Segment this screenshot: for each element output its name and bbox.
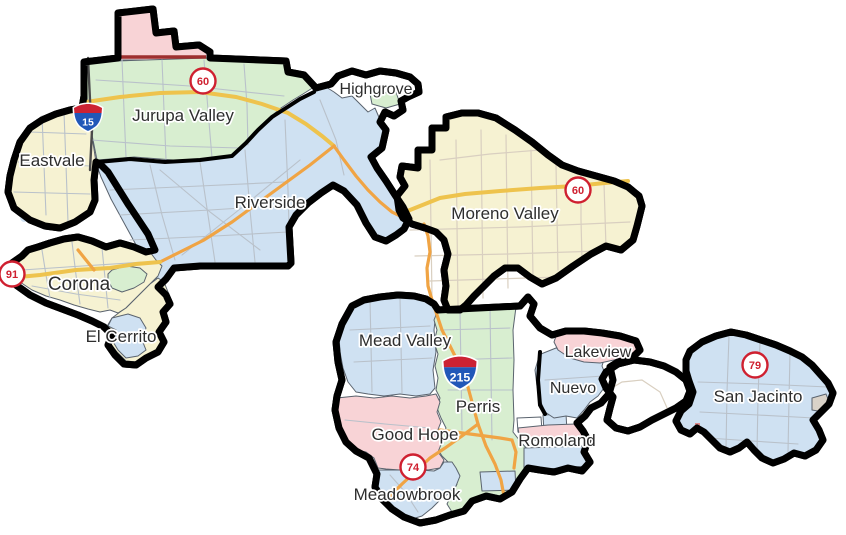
shield-sr60-west-label: 60: [197, 76, 209, 88]
shield-sr60-west: 60: [191, 69, 216, 94]
shield-sr91: 91: [0, 262, 25, 287]
label-eastvale: Eastvale: [19, 151, 84, 170]
shield-sr74: 74: [401, 455, 426, 480]
label-nuevo: Nuevo: [550, 380, 596, 397]
shield-i15-label: 15: [82, 117, 94, 129]
label-lakeview: Lakeview: [565, 344, 632, 361]
shield-sr74-label: 74: [407, 462, 420, 474]
label-meadowbrook: Meadowbrook: [354, 485, 461, 504]
shield-sr79-label: 79: [749, 360, 761, 372]
label-good-hope: Good Hope: [372, 425, 459, 444]
map-canvas[interactable]: 15 215 60 60 91 74 79 Eastvale Jurupa Va…: [0, 0, 846, 535]
label-mead-valley: Mead Valley: [359, 331, 452, 350]
label-perris: Perris: [456, 397, 500, 416]
label-san-jacinto: San Jacinto: [714, 387, 803, 406]
shield-sr60-east: 60: [566, 178, 591, 203]
shield-i215-label: 215: [450, 370, 471, 384]
map-stage: 15 215 60 60 91 74 79 Eastvale Jurupa Va…: [0, 0, 846, 535]
label-highgrove: Highgrove: [340, 81, 413, 98]
shield-sr91-label: 91: [6, 269, 18, 281]
label-romoland: Romoland: [518, 431, 596, 450]
label-el-cerrito: El Cerrito: [86, 327, 157, 346]
label-corona: Corona: [48, 274, 111, 295]
label-jurupa-valley: Jurupa Valley: [132, 106, 234, 125]
shield-sr79: 79: [743, 353, 768, 378]
label-riverside: Riverside: [235, 193, 306, 212]
label-moreno-valley: Moreno Valley: [451, 204, 559, 223]
shield-sr60-east-label: 60: [572, 185, 584, 197]
